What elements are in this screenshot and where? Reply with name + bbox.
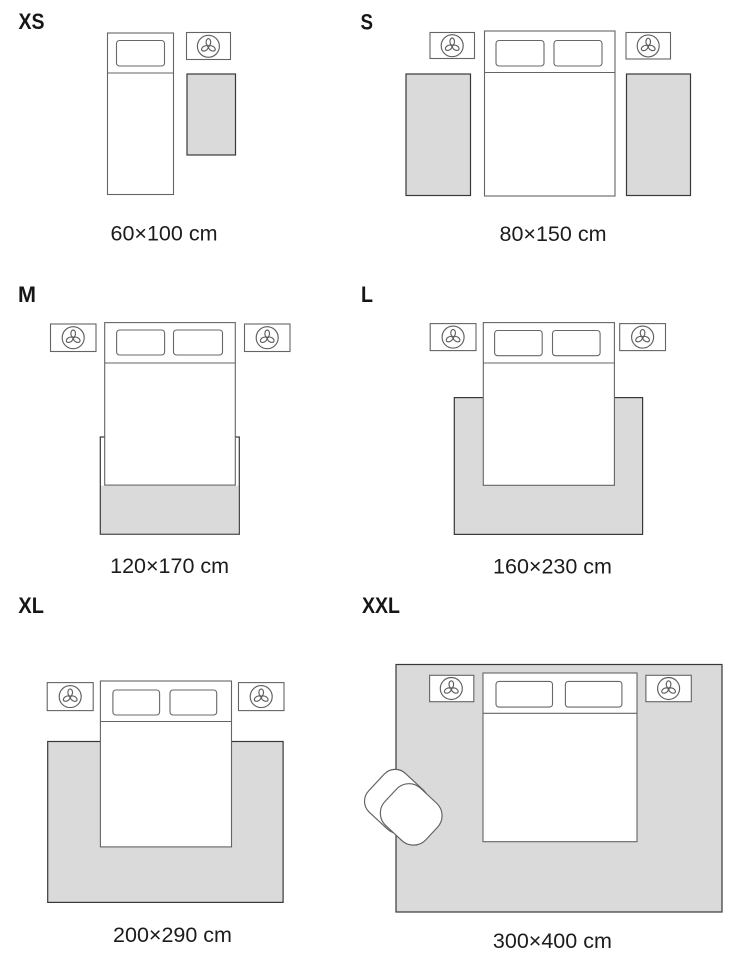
svg-text:160×230 cm: 160×230 cm [493, 555, 612, 579]
svg-text:200×290 cm: 200×290 cm [113, 923, 232, 947]
svg-text:S: S [361, 10, 374, 35]
svg-text:M: M [18, 282, 36, 307]
svg-text:XXL: XXL [362, 593, 400, 618]
svg-text:L: L [361, 282, 373, 307]
svg-text:60×100 cm: 60×100 cm [111, 222, 218, 246]
svg-text:120×170 cm: 120×170 cm [110, 554, 229, 578]
svg-text:XL: XL [18, 593, 44, 618]
svg-text:300×400 cm: 300×400 cm [493, 929, 612, 953]
svg-text:80×150 cm: 80×150 cm [500, 222, 607, 246]
svg-text:XS: XS [19, 9, 45, 34]
